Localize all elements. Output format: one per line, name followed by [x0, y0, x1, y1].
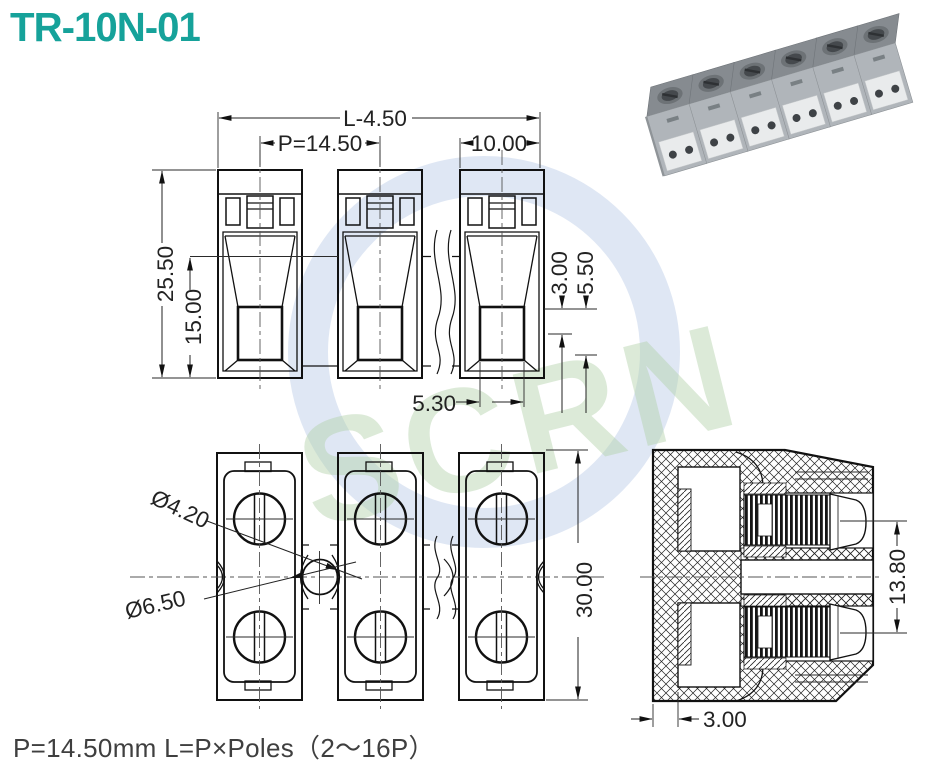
dim-depth: 30.00	[572, 562, 597, 618]
dim-block-width: 10.00	[471, 131, 527, 156]
dim-boss-dia: Ø6.50	[123, 586, 188, 624]
product-photo	[637, 14, 924, 177]
page-title: TR-10N-01	[10, 4, 200, 51]
dim-slot-width: 5.30	[412, 391, 456, 416]
dim-total-length: L-4.50	[343, 106, 407, 131]
break-line	[434, 230, 441, 374]
dim-offset-b: 5.50	[573, 251, 598, 295]
dim-screw-span: 13.80	[885, 549, 910, 605]
technical-drawing: L-4.50 P=14.50 10.00 25.50 15.00 3.00 5.…	[0, 0, 927, 763]
dim-body-height: 15.00	[181, 289, 206, 345]
plan-view: 30.00 Ø4.20 Ø6.50	[123, 444, 606, 709]
dim-hole-dia: Ø4.20	[147, 485, 213, 534]
section-view: 13.80 3.00	[631, 450, 910, 732]
dim-wall-thickness: 3.00	[703, 707, 747, 732]
front-view: L-4.50 P=14.50 10.00 25.50 15.00 3.00 5.…	[152, 106, 598, 416]
break-line	[435, 536, 440, 619]
break-line	[448, 230, 455, 374]
drawing-sheet: SCRN	[0, 0, 927, 763]
dim-pitch: P=14.50	[278, 131, 362, 156]
dim-overall-height: 25.50	[153, 246, 178, 302]
dim-offset-a: 3.00	[547, 251, 572, 295]
footer-note: P=14.50mm L=P×Poles（2～16P）	[13, 728, 435, 763]
